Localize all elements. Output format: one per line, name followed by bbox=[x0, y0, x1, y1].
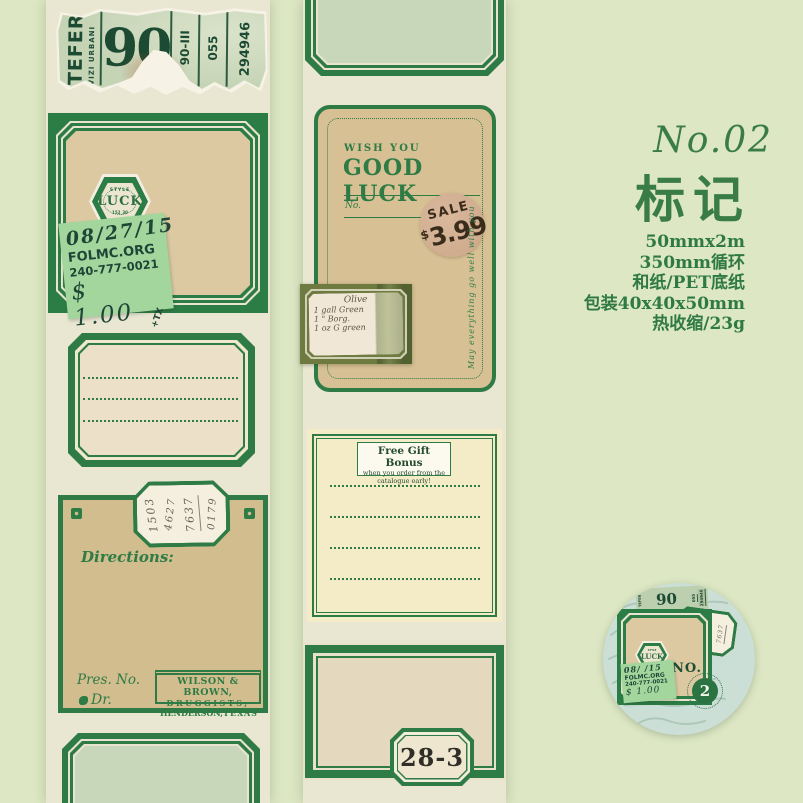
pharmacy-directions-label: 1503 4627 7637 0179 Directions: Pres. No… bbox=[58, 495, 268, 713]
pharmacy-name: WILSON & BROWN, bbox=[157, 676, 259, 698]
handwritten-number-tab: 1503 4627 7637 0179 bbox=[132, 480, 230, 548]
dr-label: Dr. bbox=[91, 692, 112, 708]
directions-heading: Directions: bbox=[81, 548, 174, 566]
spec-loop: 350mm循环 bbox=[584, 253, 745, 274]
tag-side-text: May everything go well with you bbox=[467, 159, 476, 369]
blank-lined-label bbox=[68, 333, 255, 467]
tab-scribble: 7637 bbox=[181, 495, 201, 532]
free-gift-sub1: when you order from the bbox=[358, 469, 450, 477]
free-gift-box: Free Gift Bonus when you order from the … bbox=[357, 442, 451, 476]
note-line: 1 oz G green bbox=[314, 322, 398, 332]
hex-word: LUCK bbox=[97, 194, 142, 209]
middle-tape-strip: WISH YOU GOOD LUCK No. SALE $ 3.99 May e… bbox=[303, 0, 506, 803]
sticker-price: $ 1.00 bbox=[70, 273, 144, 332]
write-line bbox=[330, 516, 480, 518]
tab-scribble: 0179 bbox=[206, 496, 219, 530]
goodluck-tag: WISH YOU GOOD LUCK No. SALE $ 3.99 May e… bbox=[314, 105, 496, 392]
badge-number: 2 bbox=[700, 682, 710, 700]
collage-note: Olive 1 gall Green 1 " Borg. 1 oz G gree… bbox=[300, 284, 412, 364]
pharmacy-type: DRUGGISTS, bbox=[157, 698, 259, 708]
bus-ticket: TEFER VIZI URBANI 90 90-III 055 294946 bbox=[56, 3, 269, 97]
write-line bbox=[330, 578, 480, 580]
ticket-brand-sub: VIZI URBANI bbox=[88, 9, 97, 85]
spec-size: 50mmx2m bbox=[584, 232, 745, 253]
corner-ornament bbox=[244, 508, 255, 519]
pharmacy-city: HENDERSON, bbox=[160, 708, 223, 718]
partial-label-bottom bbox=[62, 733, 260, 803]
spec-list: 50mmx2m 350mm循环 和纸/PET底纸 包装40x40x50mm 热收… bbox=[584, 232, 745, 335]
pres-no-label: Pres. No. bbox=[77, 672, 140, 688]
left-tape-strip: TEFER VIZI URBANI 90 90-III 055 294946 bbox=[46, 0, 270, 803]
free-gift-label: Free Gift Bonus when you order from the … bbox=[307, 429, 502, 622]
spec-weight: 热收缩/23g bbox=[584, 314, 745, 335]
spec-package: 包装40x40x50mm bbox=[584, 294, 745, 315]
mini-ticket-serial: 294946 bbox=[698, 589, 707, 606]
dr-ornament bbox=[79, 696, 88, 705]
badge-mini-sticker: 08/ /15 FOLMC.ORG 240-777-0021 $ 1.00 bbox=[620, 660, 676, 703]
write-line bbox=[330, 547, 480, 549]
luck-square-label: STYLE LUCK 152_30 08/27/15 FOLMC.ORG 240… bbox=[48, 113, 268, 313]
write-line bbox=[330, 485, 480, 487]
write-line bbox=[83, 398, 238, 400]
pharmacy-imprint-box: WILSON & BROWN, DRUGGISTS, HENDERSON, TE… bbox=[155, 670, 261, 704]
free-gift-title: Free Gift Bonus bbox=[358, 445, 450, 469]
tag-no-label: No. bbox=[345, 201, 361, 211]
free-gift-sub2: catalogue early! bbox=[358, 477, 450, 485]
hex-code: 152_30 bbox=[112, 210, 128, 215]
corner-ornament bbox=[71, 508, 82, 519]
sticker-tax: +TX bbox=[150, 306, 166, 329]
hex-top-text: STYLE bbox=[110, 188, 131, 193]
wish-you-text: WISH YOU bbox=[344, 143, 421, 154]
write-line bbox=[83, 377, 238, 379]
tab-scribble: 4627 bbox=[163, 497, 178, 532]
mini-hex-word: LUCK bbox=[641, 652, 663, 661]
product-badge: TEFER 90 055 294946 1503 4627 7637 STYLE bbox=[603, 583, 755, 735]
number-tab-28-3: 28-3 bbox=[390, 728, 474, 786]
spec-material: 和纸/PET底纸 bbox=[584, 273, 745, 294]
tab-number-text: 28-3 bbox=[400, 743, 464, 772]
badge-number-circle: 2 bbox=[692, 678, 718, 704]
series-number: No.02 bbox=[653, 120, 773, 161]
write-line bbox=[83, 420, 238, 422]
partial-label-top bbox=[305, 0, 504, 76]
product-title: 标记 bbox=[635, 160, 751, 232]
mini-ticket-number: 90 bbox=[642, 589, 692, 610]
pharmacy-state: TEXAS bbox=[223, 708, 258, 718]
product-image: TEFER VIZI URBANI 90 90-III 055 294946 bbox=[0, 0, 803, 803]
ticket-serial-3: 294946 bbox=[238, 22, 254, 76]
tab-scribble: 1503 bbox=[143, 496, 161, 534]
mini-ticket-brand: TEFER bbox=[638, 594, 643, 606]
ticket-brand: TEFER bbox=[65, 9, 88, 85]
price-sticker: 08/27/15 FOLMC.ORG 240-777-0021 $ 1.00 +… bbox=[58, 213, 173, 320]
note-paper: Olive 1 gall Green 1 " Borg. 1 oz G gree… bbox=[308, 292, 403, 356]
mini-tab-scribble: 7637 bbox=[715, 624, 727, 644]
ticket-serial-2: 055 bbox=[206, 36, 220, 61]
